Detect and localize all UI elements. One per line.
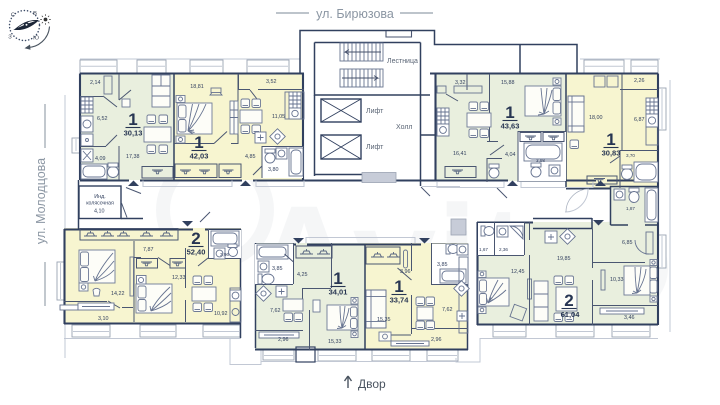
- svg-text:Двор: Двор: [358, 377, 386, 391]
- svg-text:3,10: 3,10: [98, 316, 109, 322]
- svg-text:34,01: 34,01: [329, 288, 348, 297]
- svg-text:4,85: 4,85: [245, 154, 256, 160]
- svg-text:3,96: 3,96: [220, 252, 229, 257]
- svg-text:15,88: 15,88: [501, 80, 515, 86]
- svg-text:Холл: Холл: [396, 124, 413, 131]
- svg-text:15,35: 15,35: [377, 317, 391, 323]
- svg-text:3,85: 3,85: [437, 262, 448, 268]
- svg-text:3,70: 3,70: [626, 153, 635, 158]
- svg-text:Ю: Ю: [33, 36, 39, 42]
- svg-text:7,62: 7,62: [442, 307, 453, 313]
- svg-text:3,52: 3,52: [266, 79, 277, 85]
- svg-text:1: 1: [505, 103, 514, 122]
- svg-text:1: 1: [394, 277, 403, 296]
- svg-text:10,33: 10,33: [610, 277, 624, 283]
- svg-text:1: 1: [333, 269, 342, 288]
- svg-text:42,03: 42,03: [190, 152, 209, 161]
- svg-text:3,32: 3,32: [455, 80, 466, 86]
- svg-text:2: 2: [191, 229, 200, 248]
- svg-text:14,22: 14,22: [111, 291, 125, 297]
- svg-text:ул. Бирюзова: ул. Бирюзова: [316, 7, 394, 21]
- svg-text:33,74: 33,74: [390, 296, 410, 305]
- svg-text:Лифт: Лифт: [366, 144, 384, 151]
- svg-text:30,83: 30,83: [602, 149, 621, 158]
- svg-text:4,25: 4,25: [297, 272, 308, 278]
- svg-text:16,41: 16,41: [453, 151, 467, 157]
- svg-text:4,09: 4,09: [95, 156, 106, 162]
- svg-text:3,46: 3,46: [624, 315, 635, 321]
- svg-text:7,87: 7,87: [143, 247, 154, 253]
- svg-text:6,52: 6,52: [97, 116, 108, 122]
- svg-text:4,04: 4,04: [505, 152, 516, 158]
- svg-text:Инд.: Инд.: [94, 194, 106, 200]
- svg-text:6,87: 6,87: [634, 117, 645, 123]
- svg-text:3,80: 3,80: [268, 167, 279, 173]
- svg-text:З: З: [8, 35, 12, 41]
- svg-text:1: 1: [128, 110, 137, 129]
- svg-text:Лифт: Лифт: [366, 108, 384, 115]
- svg-text:12,33: 12,33: [172, 275, 186, 281]
- svg-text:18,00: 18,00: [589, 115, 603, 121]
- svg-text:2,96: 2,96: [278, 337, 289, 343]
- svg-text:15,33: 15,33: [328, 339, 342, 345]
- svg-text:1,87: 1,87: [626, 206, 635, 211]
- svg-text:3,96: 3,96: [400, 269, 411, 275]
- svg-text:61,04: 61,04: [561, 310, 581, 319]
- svg-text:2,36: 2,36: [499, 247, 508, 252]
- svg-text:ул. Молодцова: ул. Молодцова: [34, 158, 48, 244]
- svg-text:43,63: 43,63: [501, 122, 520, 131]
- svg-text:18,81: 18,81: [190, 84, 204, 90]
- svg-text:10,92: 10,92: [214, 311, 228, 317]
- svg-text:колясочная: колясочная: [86, 201, 114, 207]
- svg-text:Лестница: Лестница: [387, 58, 418, 65]
- svg-text:19,85: 19,85: [557, 256, 571, 262]
- svg-text:4,10: 4,10: [94, 209, 105, 215]
- svg-text:С: С: [11, 13, 15, 19]
- svg-text:12,45: 12,45: [511, 269, 525, 275]
- svg-text:1: 1: [606, 130, 615, 149]
- svg-text:2,14: 2,14: [90, 80, 101, 86]
- svg-text:1,67: 1,67: [479, 247, 488, 252]
- svg-text:52,40: 52,40: [187, 248, 206, 257]
- svg-text:2,26: 2,26: [634, 78, 645, 84]
- svg-text:2: 2: [564, 291, 573, 310]
- svg-text:30,13: 30,13: [124, 129, 143, 138]
- svg-text:2,96: 2,96: [431, 337, 442, 343]
- svg-text:3,98: 3,98: [536, 158, 545, 163]
- svg-text:В: В: [33, 11, 37, 17]
- svg-text:7,62: 7,62: [270, 308, 281, 314]
- svg-text:6,85: 6,85: [622, 240, 633, 246]
- svg-text:1: 1: [194, 133, 203, 152]
- svg-text:11,05: 11,05: [272, 114, 285, 120]
- svg-text:17,38: 17,38: [126, 154, 140, 160]
- svg-text:3,85: 3,85: [272, 266, 283, 272]
